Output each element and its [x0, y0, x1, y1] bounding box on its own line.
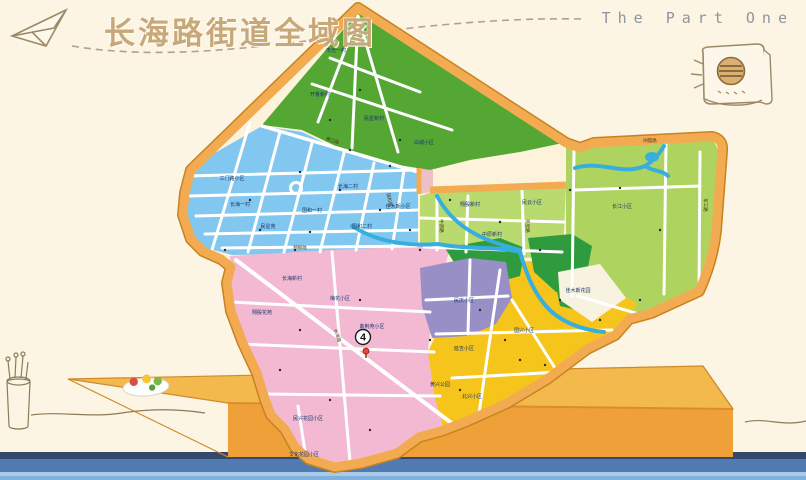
map-label: 长海一村	[230, 201, 250, 208]
map-label: 翔殷新村	[460, 201, 480, 208]
part-one-label: The Part One	[602, 9, 794, 27]
map-label: 文化花园小区	[289, 451, 319, 458]
map-label: 三门路小区	[219, 175, 244, 182]
marker-number: 4	[360, 332, 366, 344]
map-label: 民星新村	[364, 115, 384, 122]
map-label: 国兴小区	[514, 327, 534, 334]
map-label: 中原新村	[482, 231, 502, 238]
map-label: 闸殷路	[643, 137, 657, 144]
map-label: 长江小区	[612, 203, 632, 210]
map-label: 长海二村	[338, 183, 358, 190]
map-label: 开鲁新村	[310, 91, 330, 98]
map-label: 延吉小区	[454, 345, 474, 352]
wall-squiggle	[745, 421, 806, 423]
map-label: 民星苑	[260, 223, 275, 230]
scene: 市光一村开鲁新村民星新村白城小区三门路小区长海一村民星苑国和一村国和二村长海二村…	[0, 0, 806, 480]
notebook-icon	[691, 44, 772, 105]
map-label: 民云小区	[522, 199, 542, 206]
map-label: 梅花小区	[330, 295, 350, 302]
pin-icon	[363, 348, 369, 354]
map-label: 长海新村	[282, 275, 302, 282]
scene-art: 市光一村开鲁新村民星新村白城小区三门路小区长海一村民星苑国和一村国和二村长海二村…	[0, 0, 806, 480]
map-label: 民庆小区	[454, 297, 474, 304]
map-label: 白城小区	[414, 139, 434, 146]
map-label: 佳木斯花园	[565, 287, 590, 294]
map-label: 北兴小区	[462, 393, 482, 400]
map-label: 翔殷花苑	[252, 309, 272, 316]
map-label: 军工路	[702, 198, 709, 212]
map-label: 中原路	[438, 219, 445, 233]
map-label: 民星路	[524, 219, 531, 233]
map-label: 民兴花园小区	[293, 415, 323, 422]
map-label: 国和一村	[302, 207, 322, 214]
paper-plane-icon	[12, 10, 66, 46]
map-label: 国和二村	[352, 223, 372, 230]
map-label: 黄兴公园	[430, 381, 450, 388]
page-title: 长海路街道全域图	[104, 8, 376, 53]
